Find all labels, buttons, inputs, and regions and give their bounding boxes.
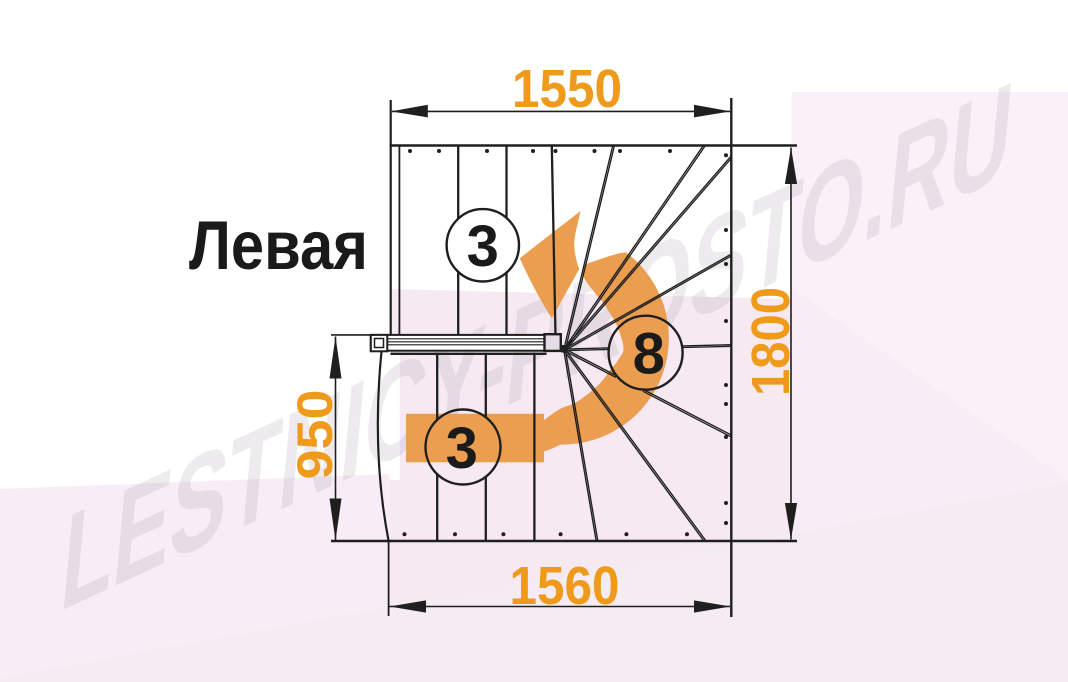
- svg-text:8: 8: [633, 322, 665, 387]
- svg-text:950: 950: [287, 390, 343, 480]
- svg-text:3: 3: [467, 214, 499, 279]
- svg-text:3: 3: [446, 416, 478, 481]
- svg-text:1560: 1560: [510, 556, 620, 616]
- svg-text:1800: 1800: [741, 287, 801, 396]
- svg-text:1550: 1550: [512, 59, 622, 119]
- svg-text:Левая: Левая: [189, 207, 368, 284]
